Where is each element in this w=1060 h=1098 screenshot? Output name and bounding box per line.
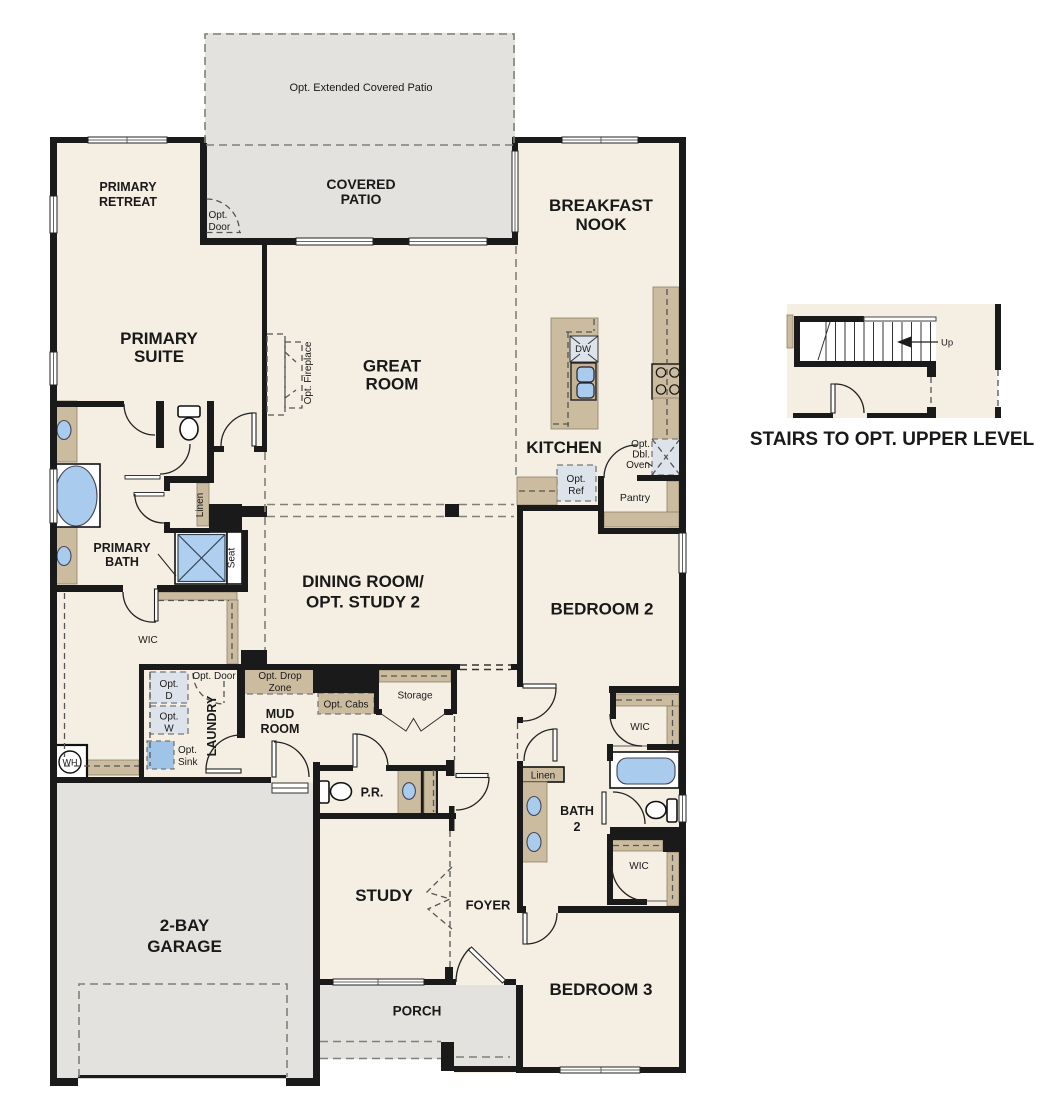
svg-text:2: 2 <box>574 820 581 834</box>
svg-text:Opt. Fireplace: Opt. Fireplace <box>303 341 314 404</box>
svg-text:Opt.: Opt. <box>631 439 650 450</box>
svg-text:PORCH: PORCH <box>393 1004 442 1019</box>
svg-text:NOOK: NOOK <box>576 215 628 234</box>
svg-text:Dbl.: Dbl. <box>632 450 650 461</box>
svg-text:Zone: Zone <box>269 683 292 694</box>
svg-text:Sink: Sink <box>178 757 198 768</box>
svg-text:BATH: BATH <box>560 804 594 818</box>
svg-text:PATIO: PATIO <box>341 191 382 207</box>
svg-text:BREAKFAST: BREAKFAST <box>549 196 654 215</box>
svg-text:WIC: WIC <box>138 635 157 646</box>
svg-text:Opt. Drop: Opt. Drop <box>258 671 302 682</box>
svg-text:Opt.: Opt. <box>160 679 179 690</box>
svg-text:Linen: Linen <box>531 771 555 782</box>
svg-text:ROOM: ROOM <box>366 375 419 394</box>
svg-text:Linen: Linen <box>195 493 206 517</box>
svg-text:Storage: Storage <box>397 691 432 702</box>
svg-text:2-BAY: 2-BAY <box>160 916 210 935</box>
svg-text:GREAT: GREAT <box>363 357 422 376</box>
svg-text:Opt. Extended Covered Patio: Opt. Extended Covered Patio <box>289 82 432 94</box>
svg-text:Opt.: Opt. <box>160 712 179 723</box>
svg-text:WIC: WIC <box>630 722 649 733</box>
svg-text:W: W <box>164 724 174 735</box>
svg-text:P.R.: P.R. <box>361 786 384 800</box>
svg-text:Up: Up <box>941 338 953 349</box>
svg-text:Opt. Door: Opt. Door <box>192 671 236 682</box>
svg-text:STAIRS TO OPT. UPPER LEVEL: STAIRS TO OPT. UPPER LEVEL <box>750 429 1035 450</box>
svg-text:FOYER: FOYER <box>466 898 511 913</box>
svg-text:GARAGE: GARAGE <box>147 937 222 956</box>
svg-text:DW: DW <box>575 344 591 355</box>
svg-text:KITCHEN: KITCHEN <box>526 438 602 457</box>
svg-text:Pantry: Pantry <box>620 492 651 504</box>
svg-text:PRIMARY: PRIMARY <box>93 541 151 555</box>
svg-text:BATH: BATH <box>105 555 139 569</box>
svg-text:STUDY: STUDY <box>355 886 413 905</box>
svg-text:Oven: Oven <box>626 460 650 471</box>
svg-text:PRIMARY: PRIMARY <box>99 180 157 194</box>
svg-text:WH: WH <box>63 758 78 768</box>
svg-text:LAUNDRY: LAUNDRY <box>205 695 219 756</box>
svg-text:BEDROOM 2: BEDROOM 2 <box>551 600 654 619</box>
svg-text:Opt.: Opt. <box>209 210 228 221</box>
svg-text:OPT. STUDY 2: OPT. STUDY 2 <box>306 593 420 612</box>
svg-text:ROOM: ROOM <box>261 722 300 736</box>
svg-text:WIC: WIC <box>629 861 648 872</box>
svg-text:SUITE: SUITE <box>134 347 184 366</box>
svg-text:COVERED: COVERED <box>326 176 395 192</box>
svg-text:BEDROOM 3: BEDROOM 3 <box>550 980 653 999</box>
svg-text:Ref: Ref <box>568 486 584 497</box>
svg-text:Opt.: Opt. <box>567 474 586 485</box>
svg-text:D: D <box>165 691 172 702</box>
svg-text:DINING ROOM/: DINING ROOM/ <box>302 572 424 591</box>
svg-text:Opt.: Opt. <box>178 745 197 756</box>
svg-text:Door: Door <box>209 222 231 233</box>
svg-text:RETREAT: RETREAT <box>99 195 157 209</box>
svg-text:MUD: MUD <box>266 707 294 721</box>
svg-text:Seat: Seat <box>227 547 238 568</box>
svg-text:PRIMARY: PRIMARY <box>120 329 198 348</box>
svg-text:Opt. Cabs: Opt. Cabs <box>323 700 368 711</box>
